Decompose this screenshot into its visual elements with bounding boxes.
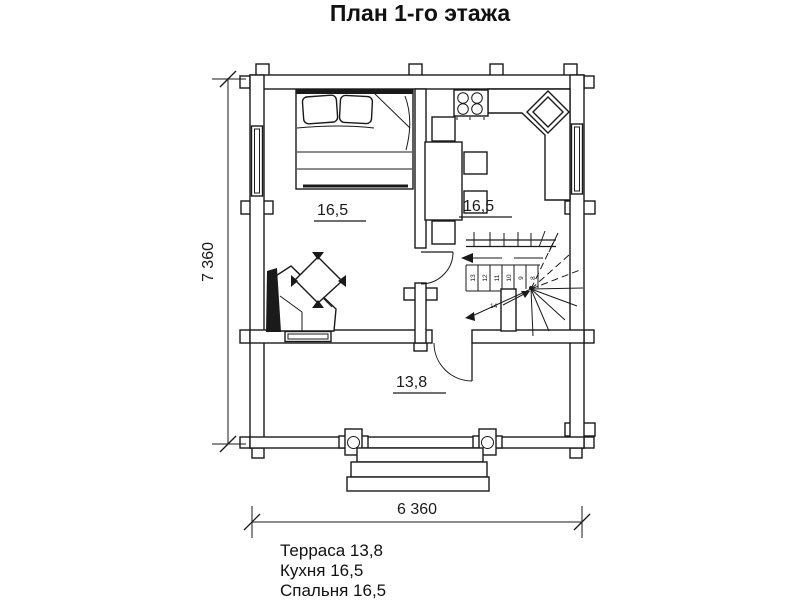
bedroom-area-label: 16,5 [314,202,366,221]
legend-item-kitchen: Кухня 16,5 [280,561,386,581]
svg-text:13,8: 13,8 [396,374,427,391]
dimension-horizontal: 6 360 [244,501,590,538]
wall-top [250,75,584,89]
step-number: 11 [494,274,501,281]
bedroom-window-left [252,126,263,196]
step-number: 9 [518,276,525,280]
step [357,448,483,462]
kitchen-table [425,142,462,220]
floor-plan-page: План 1-го этажа [0,0,800,600]
svg-text:16,5: 16,5 [317,202,348,219]
bed-headboard [296,90,413,94]
kitchen-window-right [572,124,583,194]
kitchen-chair [432,117,455,141]
step-number: 12 [482,274,489,282]
wall-terrace-front-3 [496,437,584,448]
terrace-window-middle [285,332,331,342]
stove [454,90,488,120]
flight-number: 14 [490,303,498,310]
stair-treads [466,265,540,291]
dimension-vertical: 7 360 [200,71,246,452]
kitchen-chair [464,152,487,174]
step [347,477,489,491]
upper-flight-ticks [474,231,558,252]
bed-pillow [302,95,338,124]
winder-steps [465,243,583,336]
legend-item-bedroom: Спальня 16,5 [280,581,386,600]
width-dimension: 6 360 [397,501,437,518]
floor-plan-drawing: 13 12 11 10 9 8 14 [0,0,800,600]
wall-terrace-front-2 [362,437,479,448]
stair-step-numbers: 13 12 11 10 9 8 [470,274,537,282]
stair-newel-post [501,289,516,331]
door-swing-arc [434,343,472,381]
legend: Терраса 13,8 Кухня 16,5 Спальня 16,5 [280,541,386,600]
height-dimension: 7 360 [200,242,217,282]
armchair [266,252,346,332]
wall-middle-right [472,330,584,343]
terrace-area-label: 13,8 [393,374,446,393]
kitchen-chair [432,221,455,244]
staircase: 13 12 11 10 9 8 14 [461,231,583,336]
legend-item-terrace: Терраса 13,8 [280,541,386,561]
step-number: 10 [506,274,513,282]
wall-terrace-front-1 [250,437,345,448]
doors [421,252,472,381]
bedroom-door [421,252,453,284]
terrace-door [434,343,472,381]
bed-pillow [339,95,372,124]
step-number: 13 [470,274,477,282]
kitchen-furniture [425,89,570,244]
step [351,462,487,477]
kitchen-area-label: 16,5 [459,198,512,217]
svg-text:16,5: 16,5 [463,198,494,215]
stair-direction-arrow [461,253,543,263]
entrance-steps [347,448,489,491]
wall-partition-lower [415,283,426,343]
door-swing-arc [421,252,453,284]
bed [296,90,413,189]
